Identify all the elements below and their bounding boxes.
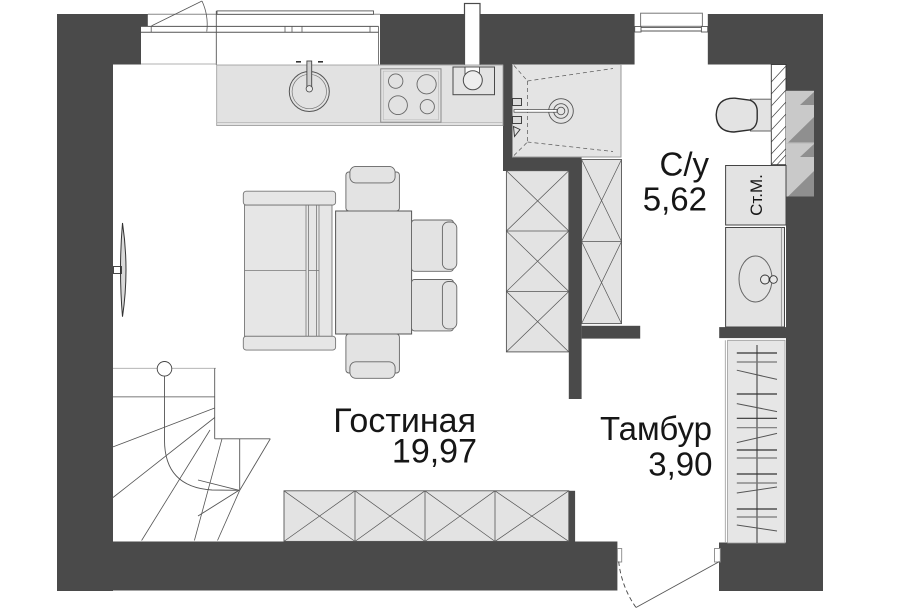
svg-text:Ст.М.: Ст.М. [747, 174, 766, 216]
svg-text:Тамбур: Тамбур [600, 410, 712, 447]
svg-text:С/у: С/у [660, 146, 710, 183]
svg-text:3,90: 3,90 [648, 446, 712, 483]
svg-text:5,62: 5,62 [643, 181, 707, 218]
svg-text:19,97: 19,97 [392, 433, 477, 471]
